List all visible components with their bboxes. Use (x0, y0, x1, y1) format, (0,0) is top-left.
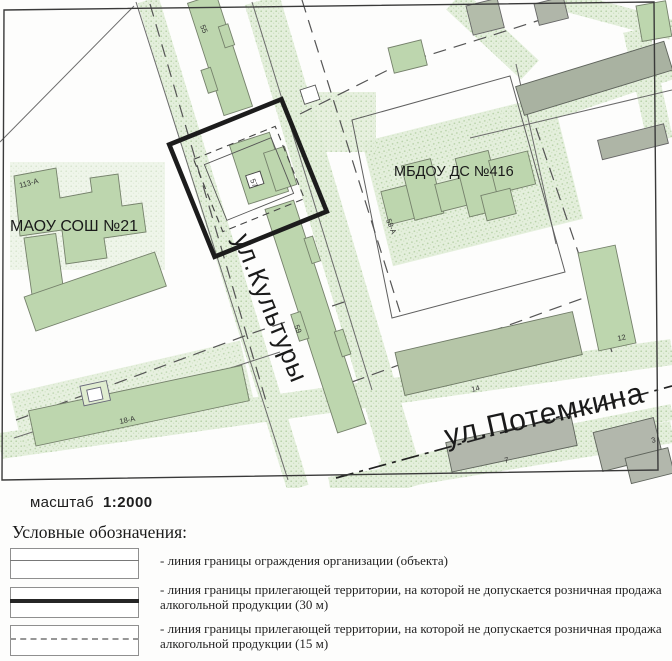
site-plan-map: МАОУ СОШ №21 МБДОУ ДС №416 ул.Культуры у… (0, 0, 672, 488)
label-school: МАОУ СОШ №21 (10, 218, 138, 235)
legend-item-30m: - линия границы прилегающей территории, … (160, 582, 668, 612)
boundary-15m-sample (10, 638, 139, 640)
legend-swatch-15m (10, 625, 139, 656)
legend-title: Условные обозначения: (12, 522, 187, 543)
fence-line-sample (10, 560, 139, 561)
label-kindergarten: МБДОУ ДС №416 (394, 164, 514, 180)
legend-swatch-fence (10, 548, 139, 579)
legend-item-fence: - линия границы ограждения организации (… (160, 553, 668, 568)
small-building (388, 40, 427, 73)
map-scale: масштаб1:2000 (30, 494, 153, 511)
boundary-30m-sample (10, 599, 139, 603)
legend-item-15m: - линия границы прилегающей территории, … (160, 621, 668, 651)
scale-label: масштаб (30, 494, 94, 511)
legend-swatch-30m (10, 587, 139, 618)
map-canvas: МАОУ СОШ №21 МБДОУ ДС №416 ул.Культуры у… (0, 0, 672, 488)
scale-value: 1:2000 (103, 494, 153, 511)
